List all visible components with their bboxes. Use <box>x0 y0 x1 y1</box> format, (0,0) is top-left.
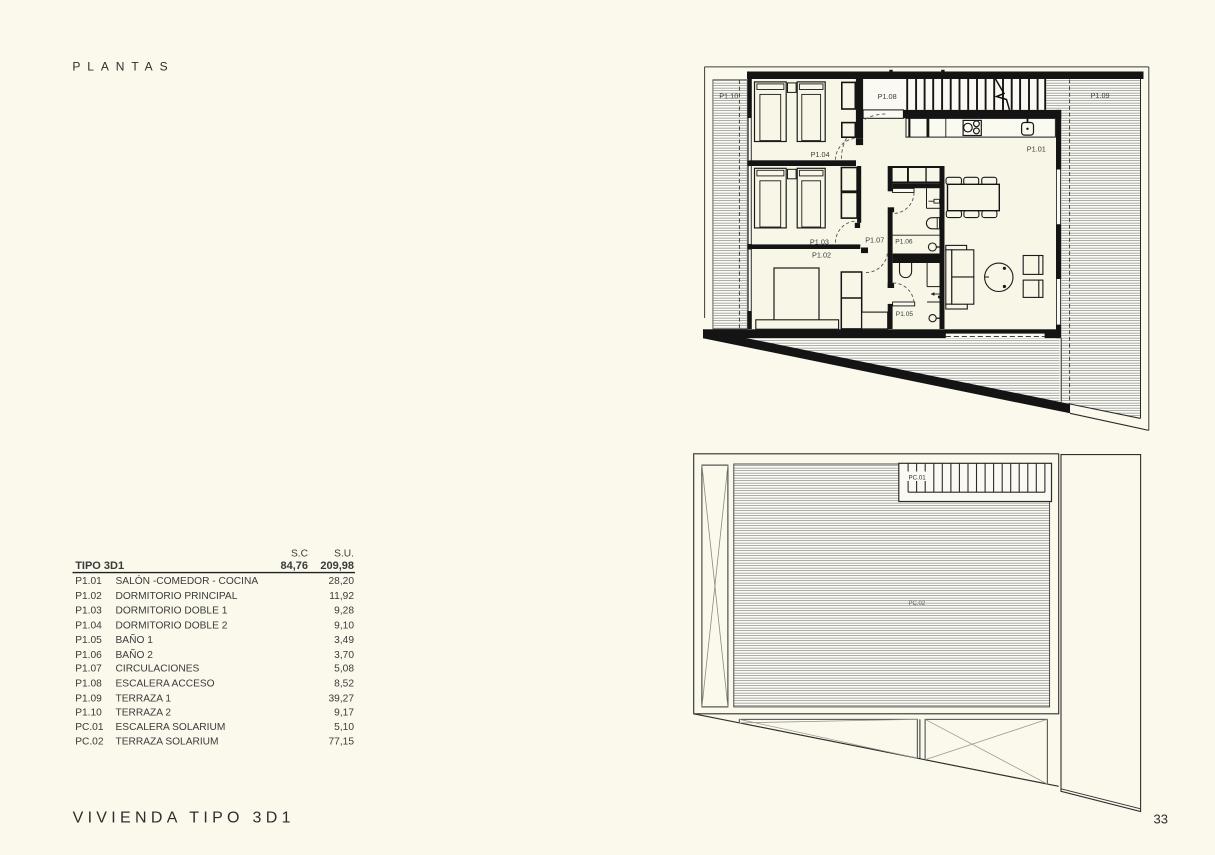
svg-text:33: 33 <box>1154 811 1168 826</box>
svg-text:PC.01: PC.01 <box>75 722 104 733</box>
svg-text:TIPO 3D1: TIPO 3D1 <box>75 560 124 572</box>
svg-text:P1.02: P1.02 <box>812 251 831 260</box>
svg-text:P1.01: P1.01 <box>75 576 102 587</box>
svg-text:CIRCULACIONES: CIRCULACIONES <box>116 664 200 675</box>
svg-text:TERRAZA SOLARIUM: TERRAZA SOLARIUM <box>116 737 219 748</box>
svg-text:VIVIENDA TIPO 3D1: VIVIENDA TIPO 3D1 <box>73 810 295 827</box>
svg-text:P1.01: P1.01 <box>1027 145 1046 154</box>
svg-text:209,98: 209,98 <box>320 560 354 572</box>
svg-text:P1.04: P1.04 <box>75 620 102 631</box>
svg-text:P1.08: P1.08 <box>878 92 897 101</box>
svg-text:11,92: 11,92 <box>329 591 354 602</box>
svg-text:PC.02: PC.02 <box>75 737 104 748</box>
svg-text:P1.06: P1.06 <box>75 650 102 661</box>
svg-text:P1.07: P1.07 <box>865 235 884 244</box>
svg-text:P1.07: P1.07 <box>75 664 102 675</box>
svg-text:8,52: 8,52 <box>334 679 354 690</box>
svg-text:S.U.: S.U. <box>334 549 354 560</box>
svg-text:P1.03: P1.03 <box>75 606 102 617</box>
svg-text:P1.08: P1.08 <box>75 679 102 690</box>
svg-text:ESCALERA SOLARIUM: ESCALERA SOLARIUM <box>116 722 226 733</box>
svg-text:39,27: 39,27 <box>329 693 355 704</box>
svg-text:PLANTAS: PLANTAS <box>72 59 174 73</box>
svg-text:S.C: S.C <box>291 549 308 560</box>
svg-text:PC.01: PC.01 <box>909 475 927 482</box>
svg-text:3,49: 3,49 <box>334 635 354 646</box>
svg-text:77,15: 77,15 <box>329 737 355 748</box>
svg-text:P1.02: P1.02 <box>75 591 102 602</box>
svg-text:PC.02: PC.02 <box>909 601 926 607</box>
svg-text:DORMITORIO PRINCIPAL: DORMITORIO PRINCIPAL <box>116 591 238 602</box>
svg-text:P1.05: P1.05 <box>896 311 914 318</box>
svg-text:5,08: 5,08 <box>334 664 354 675</box>
svg-text:BAÑO 1: BAÑO 1 <box>116 633 154 646</box>
svg-text:3,70: 3,70 <box>334 650 354 661</box>
svg-text:9,10: 9,10 <box>334 620 354 631</box>
svg-text:TERRAZA 2: TERRAZA 2 <box>116 708 172 719</box>
svg-text:P1.09: P1.09 <box>1091 91 1110 100</box>
svg-text:SALÓN -COMEDOR - COCINA: SALÓN -COMEDOR - COCINA <box>116 574 259 587</box>
svg-text:P1.09: P1.09 <box>75 693 102 704</box>
svg-text:P1.10: P1.10 <box>75 708 102 719</box>
svg-text:28,20: 28,20 <box>329 576 355 587</box>
svg-text:84,76: 84,76 <box>280 560 308 572</box>
svg-text:DORMITORIO DOBLE 1: DORMITORIO DOBLE 1 <box>116 606 228 617</box>
svg-text:P1.05: P1.05 <box>75 635 102 646</box>
svg-text:5,10: 5,10 <box>334 722 354 733</box>
svg-text:9,17: 9,17 <box>334 708 354 719</box>
svg-text:DORMITORIO DOBLE 2: DORMITORIO DOBLE 2 <box>116 620 228 631</box>
svg-text:TERRAZA 1: TERRAZA 1 <box>116 693 172 704</box>
svg-text:ESCALERA ACCESO: ESCALERA ACCESO <box>116 679 215 690</box>
svg-text:P1.10: P1.10 <box>719 91 738 100</box>
svg-text:9,28: 9,28 <box>334 606 354 617</box>
svg-text:P1.04: P1.04 <box>811 150 830 159</box>
svg-text:P1.06: P1.06 <box>895 238 913 245</box>
svg-text:BAÑO 2: BAÑO 2 <box>116 648 154 661</box>
